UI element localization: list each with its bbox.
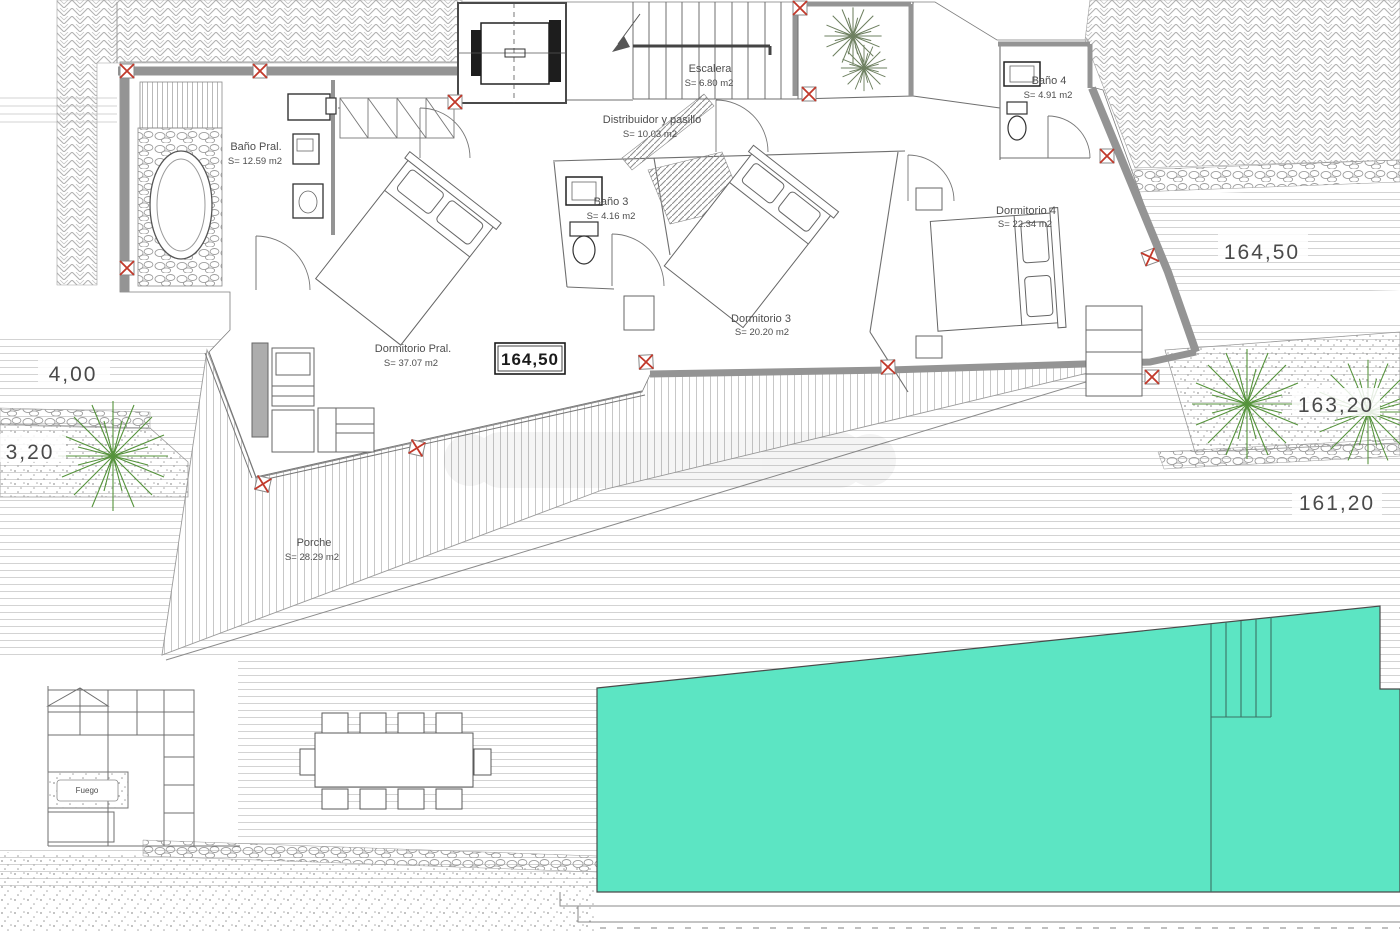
plant-icon [824,7,881,64]
chair [360,713,386,733]
plan-canvas: Fuego [0,0,1400,933]
room-area-bano-pral: S= 12.59 m2 [228,156,282,167]
room-label-distribuidor: Distribuidor y pasillo [603,114,701,126]
room-area-dorm-pral: S= 37.07 m2 [384,358,438,369]
level-left-lower: 3,20 [6,441,55,464]
wardrobe-dorm4 [1086,306,1142,396]
pool-coping [560,892,1400,922]
chair [474,749,491,775]
bbq-ground [0,655,238,847]
room-label-bano-pral: Baño Pral. [230,141,281,153]
chair [300,749,317,775]
room-label-dorm4: Dormitorio 4 [996,205,1056,217]
nightstand [916,336,942,358]
nightstand [916,188,942,210]
room-label-escalera: Escalera [689,63,733,75]
room-area-porche: S= 28.29 m2 [285,552,339,563]
palm-icon [58,401,168,511]
shower [140,82,222,128]
palm-icon [1192,349,1302,459]
fire-pit-label: Fuego [76,786,99,795]
level-garden-low: 161,20 [1299,492,1375,515]
elevator [458,3,566,103]
room-area-distribuidor: S= 10.03 m2 [623,129,677,140]
floor-plan-drawing: Fuego [0,0,1400,933]
plant-icon [841,45,887,91]
bathtub [150,151,212,259]
room-area-dorm4: S= 22.34 m2 [998,219,1052,230]
chair [398,789,424,809]
nightstand [624,296,654,330]
room-label-bano3: Baño 3 [594,196,629,208]
room-area-bano3: S= 4.16 m2 [587,211,636,222]
chair [436,713,462,733]
room-area-dorm3: S= 20.20 m2 [735,327,789,338]
level-garden-mid: 163,20 [1298,394,1374,417]
toilet [570,222,598,236]
table-top [315,733,473,787]
toilet [1007,102,1027,114]
room-label-dorm3: Dormitorio 3 [731,313,791,325]
room-label-dorm-pral: Dormitorio Pral. [375,343,451,355]
chair [322,713,348,733]
room-label-porche: Porche [297,537,332,549]
level-left-upper: 4,00 [49,363,98,386]
watermark [444,432,896,488]
room-label-bano4: Baño 4 [1032,75,1067,87]
level-terrace-right: 164,50 [1224,241,1300,264]
sink [288,94,330,120]
room-area-escalera: S= 6.80 m2 [685,78,734,89]
chair [398,713,424,733]
chair [322,789,348,809]
floor-level-value: 164,50 [501,350,559,369]
chair [436,789,462,809]
pillow [1024,275,1053,317]
room-area-bano4: S= 4.91 m2 [1024,90,1073,101]
chair [360,789,386,809]
